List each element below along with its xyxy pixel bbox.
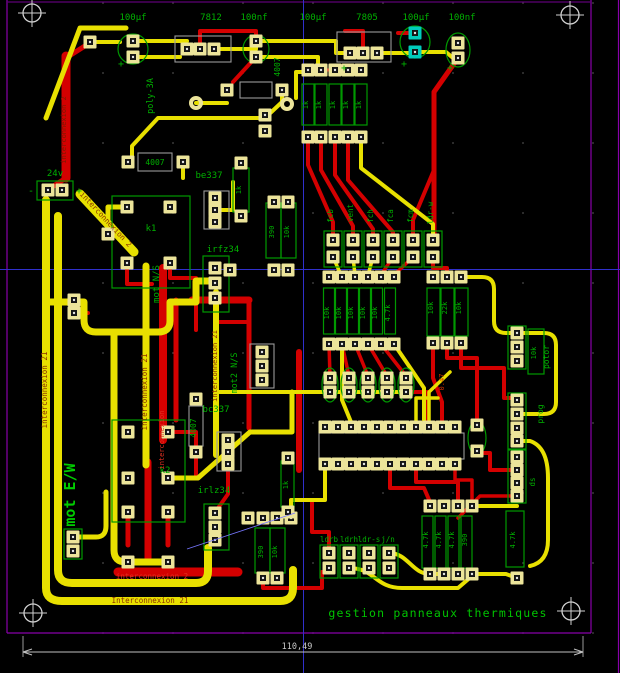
grid-dot [312, 492, 314, 494]
drill-mark [287, 457, 289, 459]
drill-mark [332, 239, 334, 241]
grid-dot [172, 422, 174, 424]
drill-mark [287, 269, 289, 271]
drill-mark [348, 377, 350, 379]
pcb-text-label: 100nf [240, 13, 267, 23]
grid-dot [102, 142, 104, 144]
drill-mark [276, 577, 278, 579]
drill-mark [328, 567, 330, 569]
pcb-text-label: 4.7k [509, 531, 517, 549]
drill-mark [328, 343, 330, 345]
drill-mark [392, 239, 394, 241]
pcb-text-label: 4.7k [384, 304, 392, 322]
drill-mark [388, 552, 390, 554]
drill-mark [389, 426, 391, 428]
pcb-text-label: mot2 N/S [230, 353, 240, 394]
drill-mark [516, 495, 518, 497]
pcb-board-view[interactable]: 100µf7812100nf100µf7805100µf100nfpoly-3A… [0, 0, 620, 673]
grid-dot [242, 422, 244, 424]
drill-mark [441, 426, 443, 428]
drill-mark [393, 276, 395, 278]
pcb-text-label: poly-3A [146, 78, 156, 114]
grid-dot [592, 352, 594, 354]
drill-mark [329, 377, 331, 379]
drill-mark [457, 57, 459, 59]
grid-dot [312, 422, 314, 424]
drill-mark [349, 52, 351, 54]
pcb-text-label: fcb [326, 209, 335, 223]
drill-mark [132, 56, 134, 58]
pcb-text-label: 4007 [273, 57, 282, 76]
grid-dot [172, 72, 174, 74]
drill-mark [368, 567, 370, 569]
pcb-text-label: potor [542, 345, 551, 369]
grid-dot [102, 72, 104, 74]
grid-dot [452, 562, 454, 564]
drill-mark [72, 536, 74, 538]
pcb-text-label: 1k [315, 100, 323, 109]
drill-mark [341, 343, 343, 345]
pcb-text-label: k1 [146, 224, 157, 234]
drill-mark [443, 573, 445, 575]
drill-mark [380, 343, 382, 345]
pcb-text-label: 10k [359, 306, 367, 319]
pcb-text-label: interconnexion 21 [40, 352, 49, 429]
grid-dot [172, 492, 174, 494]
pcb-text-label: 100µf [119, 13, 146, 23]
drill-mark [227, 451, 229, 453]
grid-dot [382, 352, 384, 354]
drill-mark [264, 114, 266, 116]
drill-mark [287, 511, 289, 513]
pcb-text-label: 10k [530, 346, 538, 359]
drill-mark [240, 215, 242, 217]
grid-dot [522, 142, 524, 144]
drill-mark [428, 426, 430, 428]
drill-mark [429, 505, 431, 507]
drill-mark [261, 365, 263, 367]
drill-mark [332, 256, 334, 258]
pcb-text-label: 1k [329, 100, 337, 109]
drill-mark [73, 312, 75, 314]
drill-mark [227, 439, 229, 441]
drill-mark [392, 256, 394, 258]
grid-dot [592, 2, 594, 4]
pcb-text-label: 22k [441, 301, 449, 314]
pcb-text-label: 1k [342, 100, 350, 109]
grid-dot [382, 212, 384, 214]
drill-mark [360, 136, 362, 138]
pcb-text-label: mot E/W [61, 462, 79, 526]
drill-mark [362, 52, 364, 54]
grid-dot [312, 282, 314, 284]
grid-dot [522, 72, 524, 74]
drill-mark [214, 512, 216, 514]
grid-dot [172, 282, 174, 284]
pcb-text-label: 390 [268, 226, 276, 239]
drill-mark [126, 262, 128, 264]
drill-mark [368, 552, 370, 554]
drill-mark [415, 426, 417, 428]
grid-dot [592, 142, 594, 144]
pcb-text-label: 0.47 [438, 374, 446, 391]
drill-mark [334, 136, 336, 138]
drill-mark [446, 342, 448, 344]
drill-mark [354, 343, 356, 345]
pcb-text-label: - [28, 186, 34, 197]
drill-mark [127, 161, 129, 163]
drill-mark [372, 239, 374, 241]
pcb-text-label: 24v [47, 169, 63, 179]
drill-mark [412, 239, 414, 241]
grid-dot [592, 212, 594, 214]
drill-mark [307, 136, 309, 138]
drill-mark [354, 276, 356, 278]
drill-mark [214, 282, 216, 284]
drill-mark [61, 189, 63, 191]
drill-mark [414, 51, 416, 53]
drill-mark [324, 463, 326, 465]
drill-mark [213, 48, 215, 50]
pcb-text-label: 1k [302, 100, 310, 109]
pcb-text-label: 1k [355, 100, 363, 109]
pcb-text-label: fch [366, 209, 375, 223]
pcb-text-label: 10k [455, 301, 463, 314]
grid-dot [522, 282, 524, 284]
pcb-text-label: interconnexion [158, 410, 166, 469]
pcb-text-label: ds [528, 477, 537, 486]
pcb-text-label: fcm [406, 209, 415, 223]
drill-mark [262, 517, 264, 519]
drill-mark [367, 276, 369, 278]
drill-mark [516, 413, 518, 415]
drill-mark [457, 505, 459, 507]
drill-mark [255, 56, 257, 58]
pcb-text-label: 10k [323, 306, 331, 319]
drill-mark [347, 69, 349, 71]
drill-mark [195, 398, 197, 400]
drill-mark [376, 426, 378, 428]
pcb-text-label: 4.7k [435, 531, 443, 549]
drill-mark [328, 552, 330, 554]
pcb-text-label: Interconnexion 21 [112, 596, 189, 605]
drill-mark [443, 505, 445, 507]
drill-mark [307, 69, 309, 71]
drill-mark [412, 256, 414, 258]
pcb-text-label: 7812 [200, 13, 222, 23]
pcb-text-label: 4.7k [448, 531, 456, 549]
drill-mark [367, 391, 369, 393]
drill-mark [376, 52, 378, 54]
drill-mark [516, 440, 518, 442]
drill-mark [127, 477, 129, 479]
grid-dot [452, 352, 454, 354]
drill-mark [240, 162, 242, 164]
grid-dot [592, 282, 594, 284]
drill-mark [320, 69, 322, 71]
drill-mark [376, 463, 378, 465]
pcb-text-label: interconnexion 2 [116, 572, 188, 581]
drill-mark [350, 426, 352, 428]
grid-dot [382, 142, 384, 144]
drill-mark [182, 161, 184, 163]
drill-mark [363, 463, 365, 465]
drill-mark [516, 469, 518, 471]
pcb-text-label: + [118, 59, 124, 70]
drill-mark [199, 48, 201, 50]
drill-mark [329, 391, 331, 393]
pcb-text-label: 4.7k [422, 531, 430, 549]
grid-dot [242, 282, 244, 284]
grid-dot [592, 492, 594, 494]
pcb-text-label: + [401, 59, 407, 70]
grid-dot [242, 492, 244, 494]
drill-mark [454, 426, 456, 428]
drill-mark [414, 32, 416, 34]
pcb-text-label: gestion panneaux thermiques [328, 606, 547, 620]
grid-dot [102, 282, 104, 284]
drill-mark [328, 276, 330, 278]
drill-mark [127, 431, 129, 433]
drill-mark [386, 391, 388, 393]
pcb-text-label: 110,49 [282, 642, 313, 652]
drill-mark [516, 360, 518, 362]
drill-mark [247, 517, 249, 519]
drill-mark [457, 42, 459, 44]
drill-mark [372, 256, 374, 258]
drill-mark [348, 567, 350, 569]
drill-mark [214, 221, 216, 223]
drill-mark [516, 482, 518, 484]
drill-mark [380, 276, 382, 278]
drill-mark [261, 379, 263, 381]
drill-mark [337, 426, 339, 428]
drill-mark [350, 463, 352, 465]
pcb-text-label: mot N/S [152, 265, 162, 303]
drill-mark [476, 450, 478, 452]
drill-mark [337, 463, 339, 465]
drill-mark [393, 343, 395, 345]
grid-dot [452, 492, 454, 494]
drill-mark [334, 69, 336, 71]
drill-mark [214, 197, 216, 199]
drill-mark [255, 40, 257, 42]
drill-mark [348, 391, 350, 393]
grid-dot [452, 142, 454, 144]
pcb-text-label: 10k [427, 301, 435, 314]
pcb-text-label: fca [386, 209, 395, 223]
drill-mark [389, 463, 391, 465]
drill-mark [214, 267, 216, 269]
pcb-text-label: ldrb [320, 535, 339, 544]
drill-mark [264, 130, 266, 132]
drill-mark [229, 269, 231, 271]
grid-dot [102, 562, 104, 564]
drill-mark [415, 463, 417, 465]
drill-mark [432, 276, 434, 278]
drill-mark [352, 256, 354, 258]
drill-mark [273, 201, 275, 203]
grid-dot [312, 352, 314, 354]
drill-mark [460, 276, 462, 278]
grid-dot [592, 562, 594, 564]
pcb-text-label: interconnexion 21 [140, 354, 149, 431]
drill-mark [72, 550, 74, 552]
drill-mark [132, 40, 134, 42]
pcb-text-label: prog [536, 404, 545, 423]
drill-mark [287, 201, 289, 203]
pcb-text-label: be337 [195, 171, 222, 181]
drill-mark [195, 451, 197, 453]
drill-mark [167, 477, 169, 479]
pcb-text-label: 10k [335, 306, 343, 319]
drill-mark [402, 426, 404, 428]
pcb-text-label: ldr-w [426, 201, 435, 224]
drill-mark [516, 399, 518, 401]
pcb-text-label: 10k [271, 545, 279, 558]
drill-mark [214, 209, 216, 211]
drill-mark [405, 391, 407, 393]
pcb-text-label: + [341, 63, 347, 74]
drill-mark [214, 526, 216, 528]
drill-mark [167, 431, 169, 433]
grid-dot [382, 72, 384, 74]
grid-dot [242, 352, 244, 354]
pcb-text-label: 7805 [356, 13, 378, 23]
drill-mark [367, 343, 369, 345]
drill-mark [476, 424, 478, 426]
drill-mark [167, 511, 169, 513]
drill-mark [89, 41, 91, 43]
pcb-text-label: 10k [283, 225, 291, 238]
pcb-text-label: ldrh [340, 535, 358, 544]
pcb-text-label: bc337 [202, 405, 229, 415]
drill-mark [405, 377, 407, 379]
drill-mark [169, 206, 171, 208]
drill-mark [471, 505, 473, 507]
drill-mark [386, 377, 388, 379]
grid-dot [242, 142, 244, 144]
grid-dot [102, 422, 104, 424]
drill-mark [441, 463, 443, 465]
pcb-text-label: 4007 [145, 158, 164, 167]
grid-dot [592, 632, 594, 634]
pcb-text-label: 390 [257, 546, 265, 559]
drill-mark [388, 567, 390, 569]
drill-mark [432, 239, 434, 241]
pcb-text-label: irlz34 [198, 486, 231, 496]
pcb-text-label: j/n [381, 535, 395, 544]
drill-mark [273, 269, 275, 271]
drill-mark [281, 89, 283, 91]
drill-mark [127, 511, 129, 513]
drill-mark [320, 136, 322, 138]
drill-mark [169, 262, 171, 264]
drill-mark [429, 573, 431, 575]
drill-mark [446, 276, 448, 278]
drill-mark [367, 377, 369, 379]
drill-mark [432, 342, 434, 344]
pcb-text-label: 10k [371, 306, 379, 319]
drill-mark [432, 256, 434, 258]
pcb-text-label: ldr-s [358, 535, 381, 544]
drill-mark [186, 48, 188, 50]
drill-mark [261, 351, 263, 353]
canvas-background [0, 0, 620, 673]
pcb-text-label: 1k [282, 480, 290, 489]
drill-mark [352, 239, 354, 241]
drill-mark [454, 463, 456, 465]
drill-mark [348, 552, 350, 554]
drill-mark [428, 463, 430, 465]
drill-mark [214, 297, 216, 299]
pcb-text-label: 1k [235, 185, 243, 194]
drill-mark [226, 89, 228, 91]
pcb-text-label: 4007 [189, 418, 198, 437]
drill-mark [516, 456, 518, 458]
drill-mark [516, 332, 518, 334]
drill-mark [457, 573, 459, 575]
drill-mark [341, 276, 343, 278]
pcb-editor-canvas[interactable]: 100µf7812100nf100µf7805100µf100nfpoly-3A… [0, 0, 620, 673]
drill-mark [127, 561, 129, 563]
grid-dot [102, 352, 104, 354]
grid-dot [242, 562, 244, 564]
drill-mark [460, 342, 462, 344]
drill-mark [516, 427, 518, 429]
drill-mark [227, 463, 229, 465]
grid-dot [382, 492, 384, 494]
pcb-text-label: 100nf [448, 13, 475, 23]
pcb-text-label: vent [346, 204, 355, 222]
grid-dot [452, 212, 454, 214]
drill-mark [324, 426, 326, 428]
pcb-text-label: interconnexion 2 [60, 96, 68, 163]
pcb-text-label: 100µf [402, 13, 429, 23]
pcb-text-label: 390 [461, 534, 469, 547]
grid-dot [592, 72, 594, 74]
drill-mark [363, 426, 365, 428]
drill-mark [471, 573, 473, 575]
drill-mark [516, 346, 518, 348]
grid-dot [592, 422, 594, 424]
drill-mark [402, 463, 404, 465]
drill-mark [73, 299, 75, 301]
pcb-text-label: interconnexion 21 [211, 330, 219, 402]
drill-mark [167, 561, 169, 563]
drill-mark [107, 233, 109, 235]
drill-mark [347, 136, 349, 138]
drill-mark [360, 69, 362, 71]
grid-dot [172, 142, 174, 144]
drill-mark [516, 577, 518, 579]
drill-mark [262, 577, 264, 579]
pcb-text-label: 100µf [299, 13, 326, 23]
pcb-text-label: + [447, 63, 453, 74]
grid-dot [312, 212, 314, 214]
drill-mark [126, 206, 128, 208]
drill-mark [47, 189, 49, 191]
grid-dot [312, 562, 314, 564]
grid-dot [522, 212, 524, 214]
pcb-text-label: 10k [347, 306, 355, 319]
pcb-text-label: irfz34 [207, 245, 240, 255]
